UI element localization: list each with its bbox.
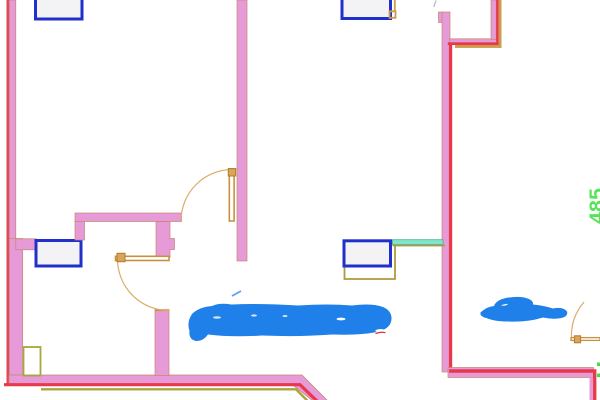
svg-text:485: 485 [585, 188, 600, 224]
